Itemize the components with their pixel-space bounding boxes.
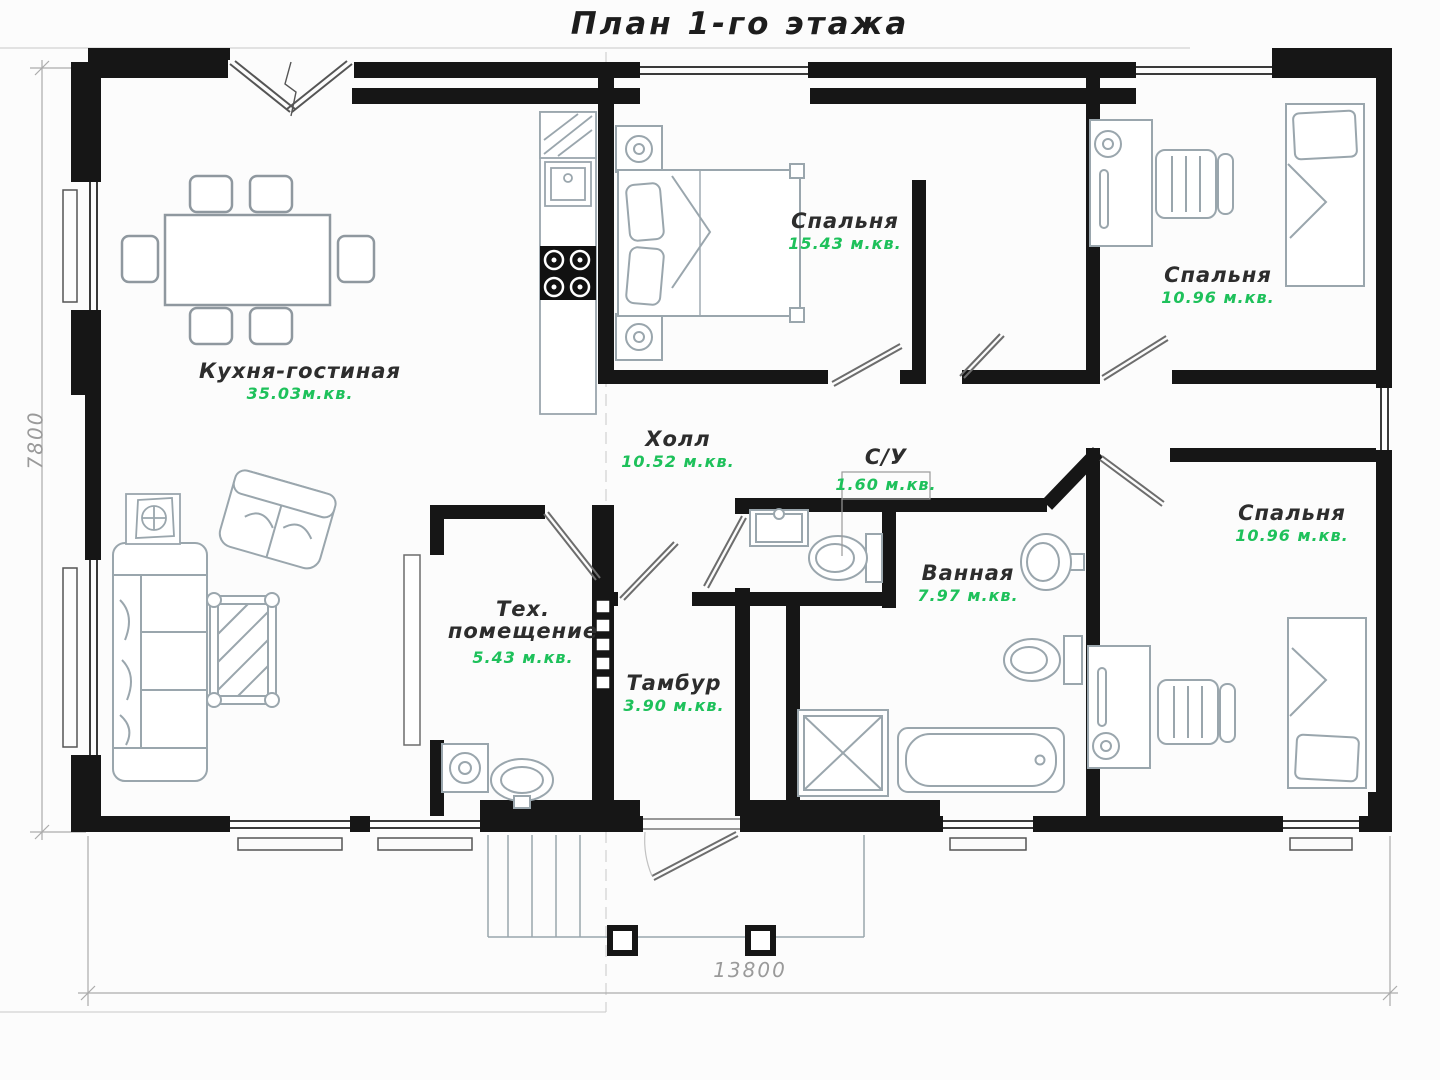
dimension-height: 7800 [23, 411, 47, 470]
tech-fixtures [442, 744, 553, 808]
porch-columns [610, 928, 773, 953]
doors [544, 334, 1168, 880]
bedroom-top-furniture [616, 126, 804, 360]
wc-fixtures [750, 509, 882, 582]
coffee-table [207, 593, 279, 707]
page-title: План 1-го этажа [440, 6, 1040, 42]
bedroom-right-bottom-furniture [1088, 618, 1366, 788]
porch [488, 835, 864, 937]
dimension-width: 13800 [660, 958, 840, 982]
dining-table-set [122, 176, 374, 344]
meter-boxes [596, 600, 610, 689]
plant-decor [126, 494, 180, 544]
sliding-door-leaf [404, 555, 420, 745]
kitchen-stove [540, 246, 596, 300]
armchair [217, 468, 338, 572]
bedroom-right-top-furniture [1090, 104, 1364, 286]
floor-plan-drawing [0, 0, 1440, 1080]
sofa [113, 543, 207, 781]
